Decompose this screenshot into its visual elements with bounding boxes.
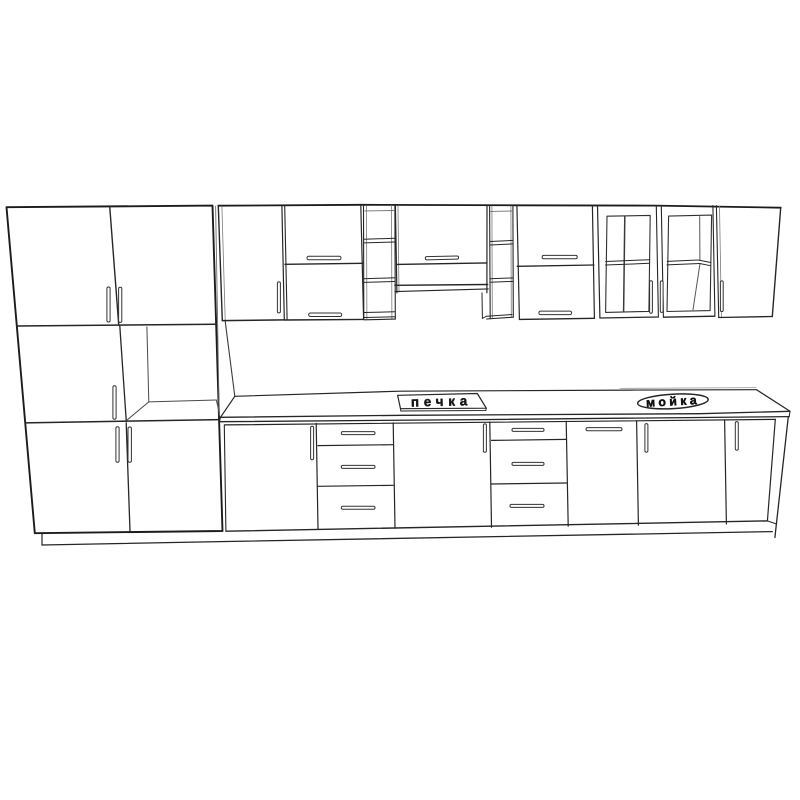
- svg-text:печка: печка: [411, 393, 472, 409]
